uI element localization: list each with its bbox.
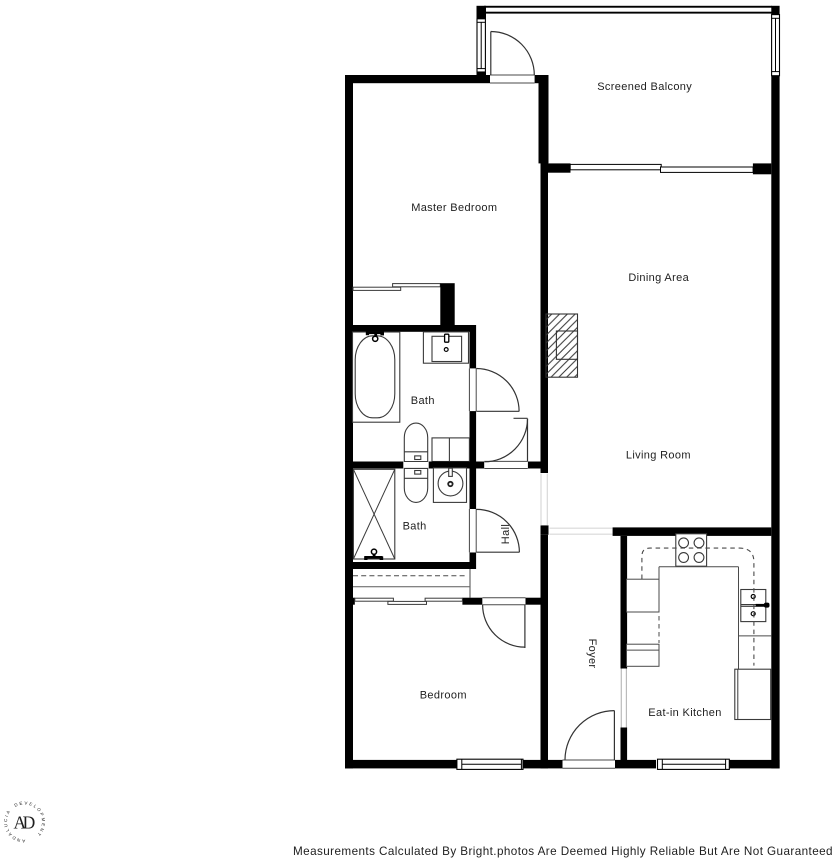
svg-text:Bath: Bath — [403, 521, 427, 533]
svg-text:Foyer: Foyer — [586, 639, 598, 669]
svg-text:Measurements Calculated By Bri: Measurements Calculated By Bright.photos… — [293, 845, 833, 858]
svg-text:Living Room: Living Room — [626, 450, 691, 462]
svg-text:Eat-in Kitchen: Eat-in Kitchen — [648, 707, 721, 719]
svg-text:Dining Area: Dining Area — [628, 272, 689, 284]
svg-text:Bath: Bath — [411, 395, 435, 407]
svg-text:D: D — [23, 813, 36, 833]
svg-text:Bedroom: Bedroom — [420, 690, 467, 702]
svg-text:Screened Balcony: Screened Balcony — [597, 81, 692, 93]
svg-text:Master Bedroom: Master Bedroom — [411, 202, 497, 214]
svg-text:Hall: Hall — [500, 524, 512, 544]
